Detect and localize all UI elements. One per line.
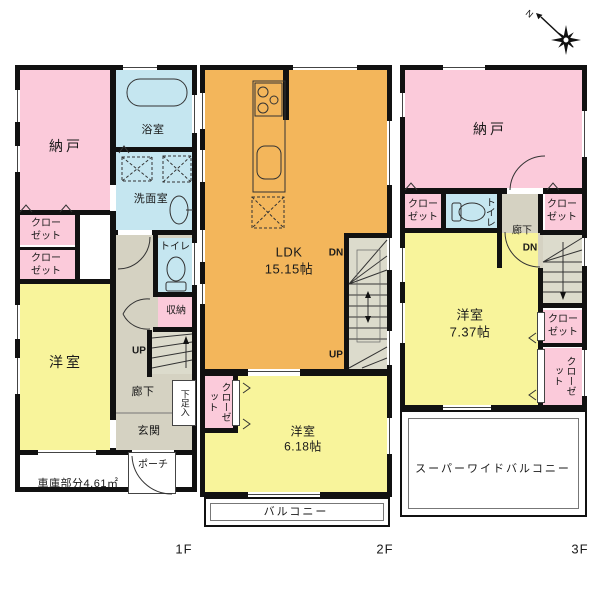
floor-plan-canvas: N 納戸 浴室 洗面室 クロー ゼット クロー ゼット トイレ 収納 洋室 UP…: [0, 0, 600, 600]
label-3f-dn: DN: [523, 243, 537, 256]
window: [192, 243, 197, 285]
window: [15, 146, 20, 172]
window: [15, 358, 20, 394]
label-2f-western: 洋室 6.18帖: [284, 425, 322, 456]
compass-north-label: N: [524, 8, 535, 20]
wall: [344, 237, 349, 369]
label-2f-closet: クローゼット: [205, 379, 231, 425]
wall: [147, 330, 152, 377]
wall: [15, 65, 197, 70]
window: [400, 93, 405, 117]
wall: [441, 194, 446, 228]
window: [582, 350, 587, 396]
sliding-door: [248, 369, 300, 376]
window: [192, 95, 197, 133]
room-3f-stairs: [543, 233, 582, 305]
label-1f-shoe-box: 下足入: [178, 390, 190, 417]
door-opening: [118, 230, 152, 235]
closet-slide-door: [232, 380, 240, 426]
window: [582, 238, 587, 266]
label-3f-balcony: スーパーワイドバルコニー: [415, 462, 571, 476]
wall: [15, 279, 112, 284]
wall: [400, 65, 587, 70]
window: [200, 150, 205, 182]
window: [123, 65, 157, 70]
closet-slide-door: [537, 312, 545, 341]
label-3f-closet-c: クロー ゼット: [548, 314, 578, 340]
window: [387, 418, 392, 454]
label-1f-corridor: 廊下: [132, 385, 155, 399]
label-1f-western: 洋室: [49, 354, 83, 372]
label-1f-nando: 納戸: [49, 138, 83, 156]
wall: [540, 343, 587, 347]
wall: [400, 188, 587, 194]
label-1f-closet-b: クロー ゼット: [31, 253, 61, 279]
wall: [344, 233, 392, 238]
window: [400, 303, 405, 343]
label-3f-closet-d: クローゼット: [550, 353, 576, 399]
wall: [75, 210, 80, 284]
porch-box: [128, 452, 176, 494]
window: [387, 121, 392, 185]
label-1f-toilet: トイレ: [160, 242, 190, 255]
window: [387, 238, 392, 270]
closet-slide-door: [537, 349, 545, 403]
window: [200, 230, 205, 262]
window: [200, 284, 205, 304]
label-3f-corridor: 廊下: [512, 226, 532, 239]
wall: [283, 65, 289, 120]
wall: [15, 210, 112, 215]
window: [15, 305, 20, 339]
window: [400, 248, 405, 282]
window: [200, 93, 205, 129]
label-2f-up: UP: [329, 350, 343, 363]
wall: [153, 292, 197, 297]
label-1f-up: UP: [132, 346, 146, 359]
door-opening: [110, 420, 116, 448]
label-3f-western: 洋室 7.37帖: [450, 307, 491, 340]
wall: [203, 428, 238, 433]
wall: [174, 450, 197, 455]
compass-icon: N: [524, 8, 582, 56]
label-2f-dn: DN: [329, 248, 343, 261]
window: [387, 331, 392, 365]
room-2f-stairs: [349, 238, 387, 369]
wall: [400, 228, 502, 233]
wall: [153, 327, 197, 332]
wall: [153, 233, 158, 292]
wall: [538, 194, 543, 233]
door-opening: [507, 188, 543, 194]
label-3f-toilet: トイレ: [482, 197, 495, 227]
label-3f-closet-b: クロー ゼット: [547, 199, 577, 225]
wall: [540, 303, 587, 308]
label-3f-closet-a: クロー ゼット: [408, 199, 438, 225]
label-1f-porch: ポーチ: [138, 460, 168, 473]
wall: [540, 230, 587, 235]
label-1f-closet-a: クロー ゼット: [31, 218, 61, 244]
label-2f-ldk: LDK 15.15帖: [265, 244, 314, 277]
room-1f-stairs: [152, 332, 192, 374]
window: [38, 450, 96, 455]
label-1f-bath: 浴室: [142, 123, 165, 137]
door-opening: [110, 185, 116, 211]
label-2f-balcony: バルコニー: [264, 505, 329, 519]
window: [443, 65, 485, 70]
label-1f-storage: 収納: [166, 306, 186, 319]
wall: [15, 247, 75, 250]
label-floor-3f: 3F: [571, 542, 588, 559]
label-1f-washroom: 洗面室: [134, 192, 169, 206]
wall: [110, 233, 116, 450]
label-1f-entrance: 玄関: [138, 424, 161, 438]
label-floor-1f: 1F: [175, 542, 192, 559]
label-3f-nando: 納戸: [473, 121, 507, 139]
label-floor-2f: 2F: [376, 542, 393, 559]
window: [582, 111, 587, 157]
wall: [110, 147, 197, 152]
label-1f-garage: 車庫部分4.61㎡: [38, 477, 119, 491]
window: [15, 90, 20, 122]
window: [293, 65, 357, 70]
